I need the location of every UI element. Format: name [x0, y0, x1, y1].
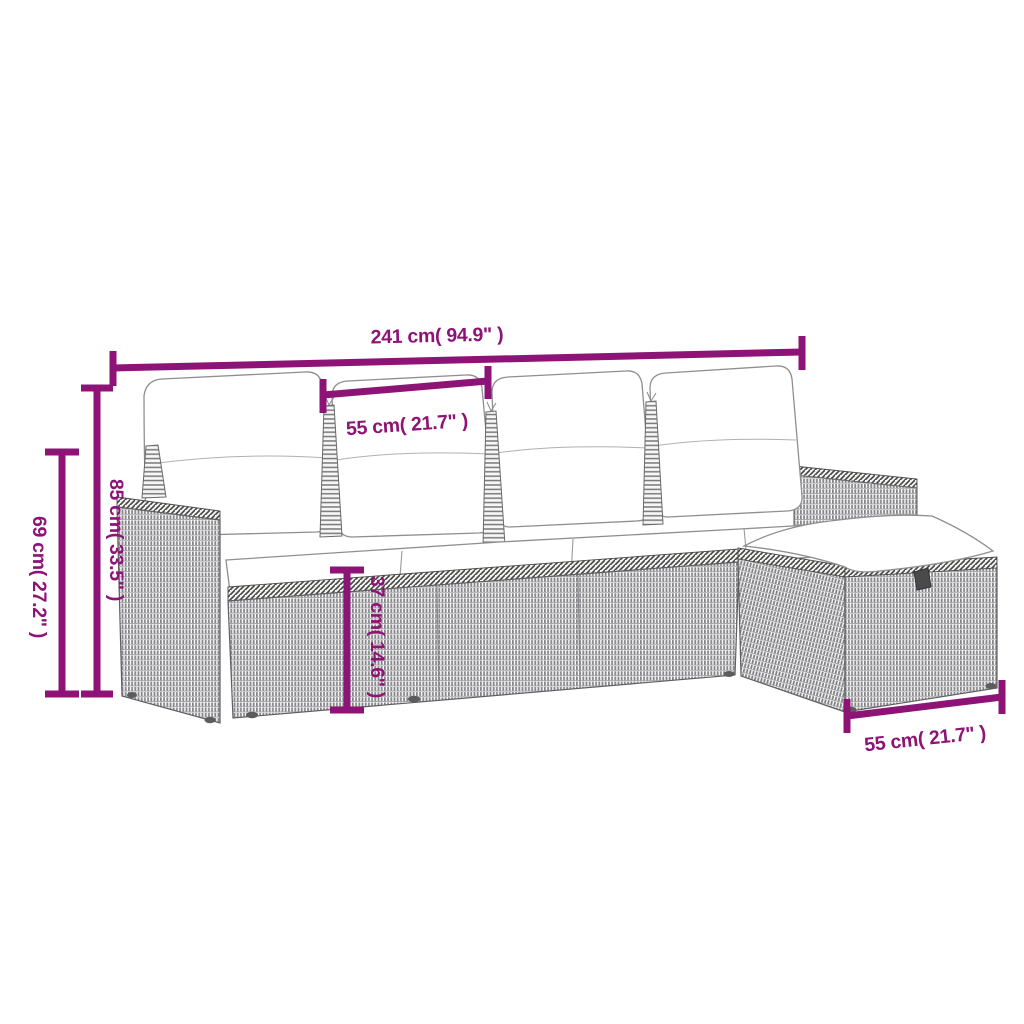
ottoman-handle [914, 568, 931, 590]
dimension-arm-height: 69 cm( 27.2" ) [28, 452, 79, 694]
product-image-canvas: 241 cm( 94.9" ) 55 cm( 21.7" ) 69 cm( 27… [0, 0, 1024, 1024]
dimension-back-height: 85 cm( 33.5" ) [81, 388, 127, 694]
left-armrest [117, 497, 220, 723]
dimension-label-ottoman-width: 55 cm( 21.7" ) [863, 722, 987, 757]
back-cushion-2 [332, 375, 494, 537]
dimension-label-overall-width: 241 cm( 94.9" ) [370, 323, 503, 348]
garden-sofa-dimension-drawing: 241 cm( 94.9" ) 55 cm( 21.7" ) 69 cm( 27… [0, 0, 1024, 1024]
left-armrest-body [117, 507, 220, 723]
back-cushions [144, 366, 802, 537]
back-cushion-4 [650, 366, 802, 517]
ottoman-left-face [738, 558, 845, 712]
dimension-label-back-height: 85 cm( 33.5" ) [105, 479, 127, 601]
ottoman [738, 515, 997, 713]
back-cushion-3 [492, 371, 652, 527]
dimension-label-seat-height: 37 cm( 14.6" ) [366, 576, 388, 698]
dimension-label-arm-height: 69 cm( 27.2" ) [28, 516, 50, 638]
dimension-line [113, 352, 802, 368]
